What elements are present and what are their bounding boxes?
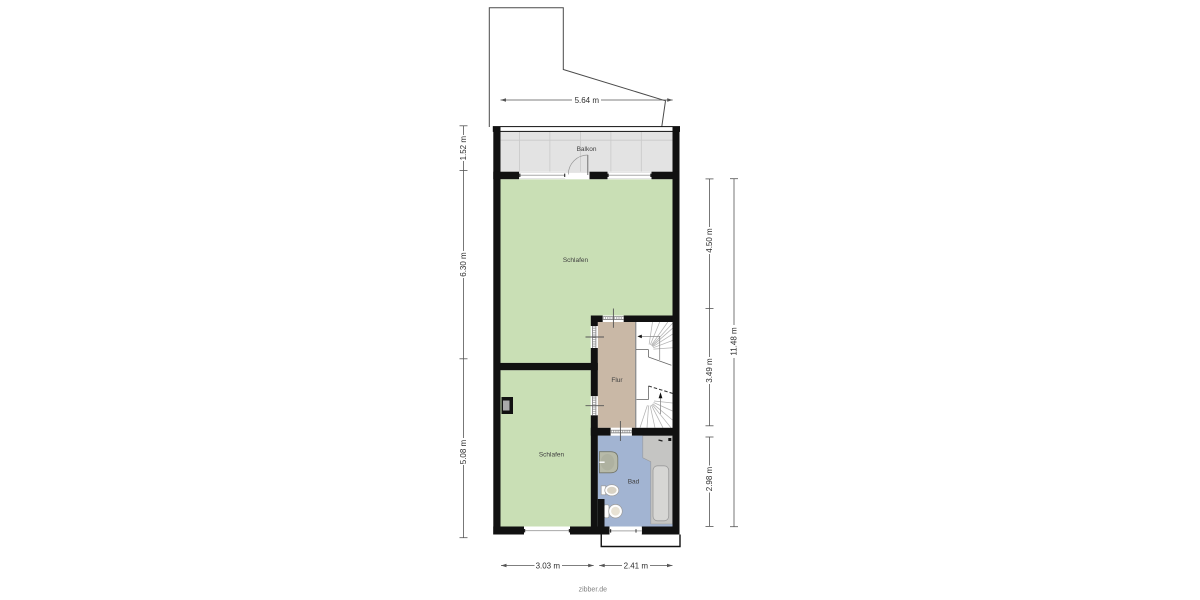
svg-text:6.30 m: 6.30 m xyxy=(459,252,468,277)
svg-text:Schlafen: Schlafen xyxy=(539,452,565,459)
svg-text:zibber.de: zibber.de xyxy=(579,587,608,594)
svg-text:Schlafen: Schlafen xyxy=(563,257,589,264)
svg-text:3.49 m: 3.49 m xyxy=(705,358,714,383)
svg-text:2.98 m: 2.98 m xyxy=(705,466,714,491)
svg-text:Balkon: Balkon xyxy=(577,146,597,153)
svg-text:1.52 m: 1.52 m xyxy=(459,136,468,161)
svg-text:2.41 m: 2.41 m xyxy=(624,561,649,570)
svg-text:4.50 m: 4.50 m xyxy=(705,228,714,253)
svg-text:11.48 m: 11.48 m xyxy=(730,327,739,356)
svg-text:5.08 m: 5.08 m xyxy=(459,439,468,464)
svg-text:Bad: Bad xyxy=(628,479,640,486)
svg-text:5.64 m: 5.64 m xyxy=(575,96,600,105)
svg-text:Flur: Flur xyxy=(611,377,623,384)
svg-text:3.03 m: 3.03 m xyxy=(536,561,561,570)
